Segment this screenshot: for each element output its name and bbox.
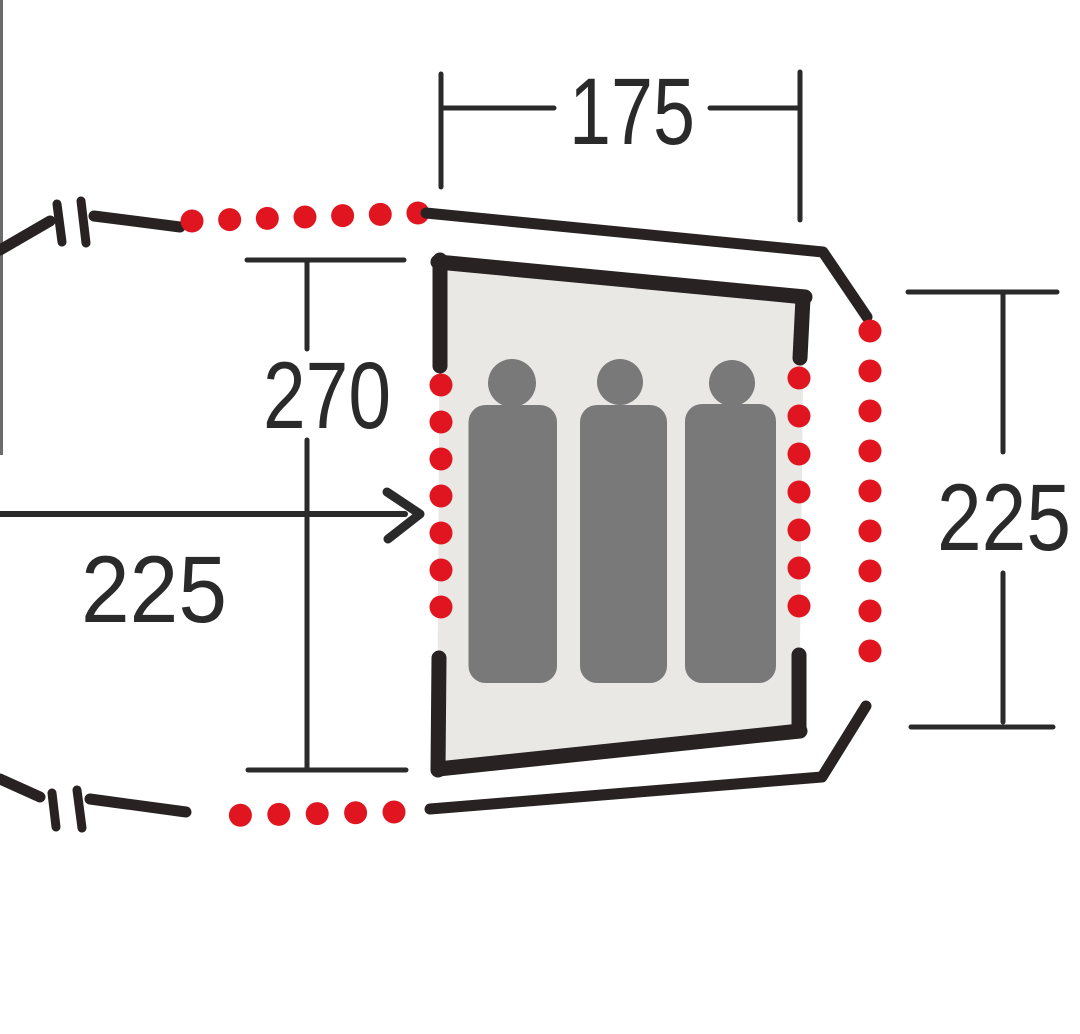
person-body	[685, 404, 776, 683]
cabin-border-left-lower	[438, 658, 439, 770]
outline-bottom-left-segment	[0, 779, 40, 797]
floorplan-canvas: 175 270 225 225	[0, 0, 1080, 1034]
dim-label-right-depth: 225	[937, 465, 1071, 571]
dim-label-inner-depth: 270	[263, 343, 391, 449]
person-body	[580, 405, 667, 683]
pole-tick-bottom-2	[77, 790, 82, 828]
sleeping-person-icon	[685, 360, 776, 683]
pole-tick-top-2	[81, 201, 86, 243]
dimension-left-length: 225	[0, 492, 420, 643]
sleeping-person-icon	[469, 359, 558, 683]
cabin-border-right-upper	[800, 298, 803, 358]
person-body	[469, 405, 558, 683]
outline-top-left-segment	[0, 221, 50, 250]
pole-tick-top-1	[57, 204, 62, 242]
outline-bottom-segment	[90, 799, 186, 812]
outline-top-segment	[94, 216, 180, 227]
outer-dots-top	[192, 213, 418, 221]
person-head	[597, 359, 643, 405]
dimension-right-depth: 225	[908, 292, 1071, 727]
person-head	[709, 360, 755, 406]
dim-label-top-width: 175	[569, 59, 695, 165]
pole-tick-bottom-1	[52, 793, 56, 827]
sleeping-person-icon	[580, 359, 667, 683]
outer-dots-bottom	[202, 812, 394, 816]
dim-label-left-length: 225	[81, 537, 227, 643]
person-head	[488, 359, 536, 407]
tent-floorplan-diagram: 175 270 225 225	[0, 0, 1080, 1034]
sleeping-cabin	[437, 260, 805, 770]
dimension-top-width: 175	[441, 59, 800, 220]
